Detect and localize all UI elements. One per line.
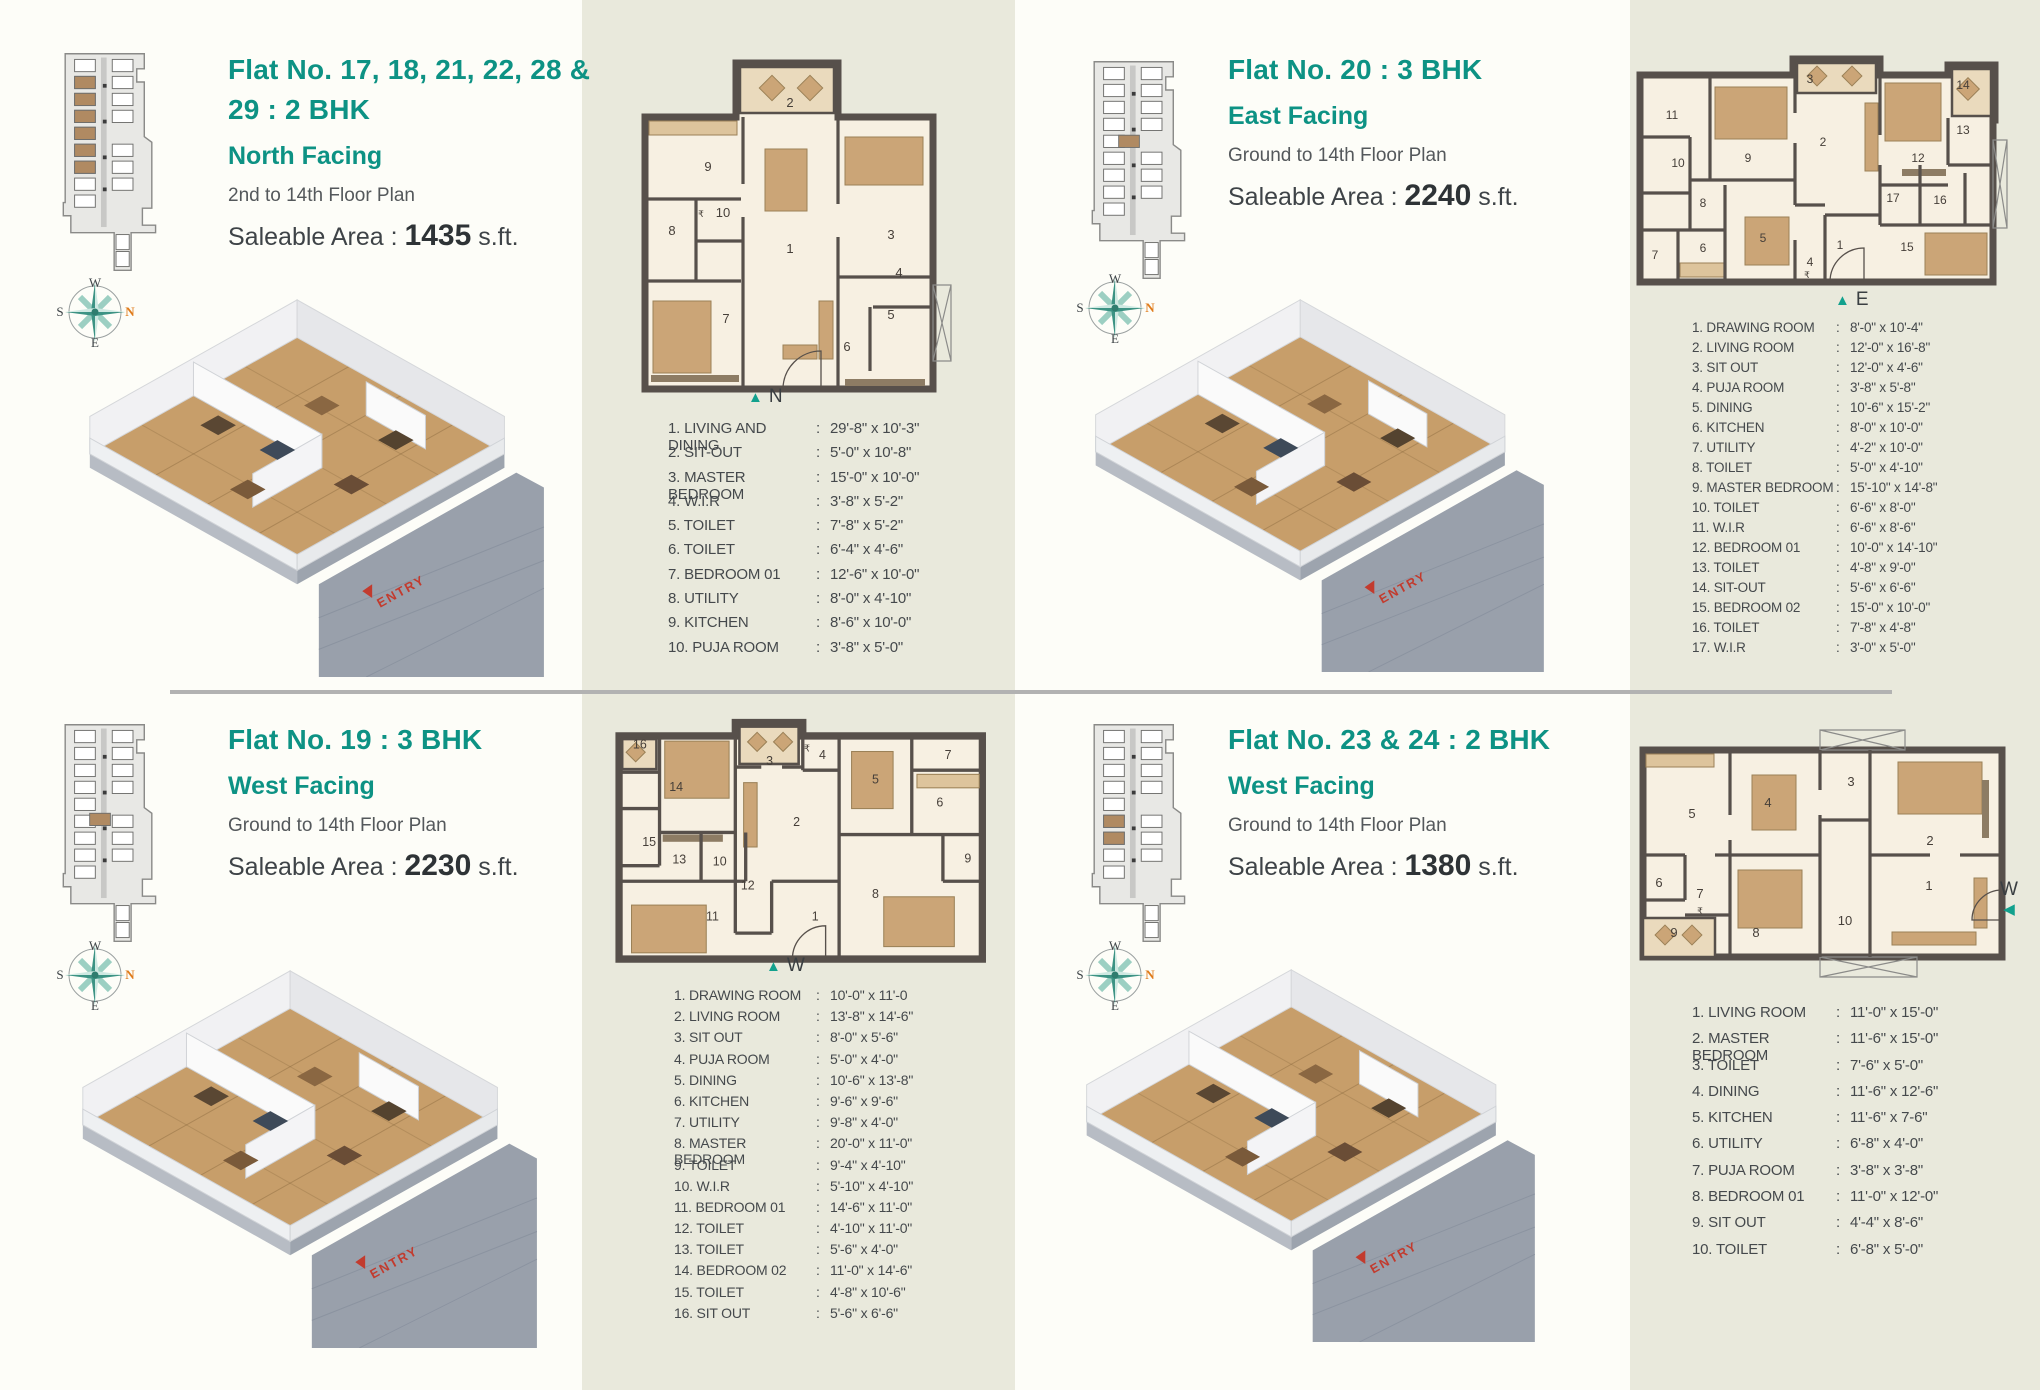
compass-letter-top: W (89, 275, 102, 290)
render-graphics: ENTRY (1096, 300, 1544, 672)
direction-arrow-icon: ▲ (1835, 293, 1850, 308)
room-dimension-list: 1. LIVING AND DINING:29'-8" x 10'-3"2. S… (668, 420, 968, 663)
area-unit: s.ft. (478, 223, 518, 251)
room-row: 11. W.I.R:6'-6" x 8'-6" (1692, 520, 1992, 540)
flat-header: Flat No. 17, 18, 21, 22, 28 & 29 : 2 BHK… (228, 50, 628, 253)
room-number-label: 8 (872, 887, 879, 901)
room-number-label: 5 (887, 307, 894, 322)
area-unit: s.ft. (1478, 853, 1518, 881)
room-row: 10. PUJA ROOM:3'-8" x 5'-0" (668, 639, 968, 663)
room-row: 4. PUJA ROOM:5'-0" x 4'-0" (674, 1051, 974, 1072)
direction-letter: W (2000, 879, 2018, 901)
room-row: 11. BEDROOM 01:14'-6" x 11'-0" (674, 1199, 974, 1220)
floor-range: 2nd to 14th Floor Plan (228, 185, 628, 207)
site-key-plan (52, 48, 165, 278)
area-label: Saleable Area : (1228, 853, 1398, 881)
direction-letter: W (787, 955, 805, 977)
room-number-label: 6 (1700, 241, 1707, 255)
compass-letter-top: W (1109, 271, 1122, 286)
direction-letter: N (769, 386, 783, 408)
room-row: 7. PUJA ROOM:3'-8" x 3'-8" (1692, 1162, 1992, 1188)
direction-arrow-icon: ◀ (2003, 902, 2015, 917)
room-number-label: 9 (1745, 151, 1752, 165)
room-row: 14. BEDROOM 02:11'-0" x 14'-6" (674, 1262, 974, 1283)
north-marker: ▲ N (748, 386, 783, 408)
floor-range: Ground to 14th Floor Plan (1228, 145, 1688, 167)
room-row: 12. TOILET:4'-10" x 11'-0" (674, 1220, 974, 1241)
room-number-label: 10 (716, 205, 730, 220)
saleable-area: Saleable Area : 1380 s.ft. (1228, 849, 1688, 883)
floor-plan-2d: 16143₹457621513101211189 (590, 710, 1000, 985)
room-number-label: 2 (1820, 135, 1827, 149)
room-row: 10. W.I.R:5'-10" x 4'-10" (674, 1178, 974, 1199)
room-row: 7. UTILITY:4'-2" x 10'-0" (1692, 440, 1992, 460)
room-row: 12. BEDROOM 01:10'-0" x 14'-10" (1692, 540, 1992, 560)
facing-label: East Facing (1228, 102, 1688, 131)
room-row: 14. SIT-OUT:5'-6" x 6'-6" (1692, 580, 1992, 600)
floor-plan-2d: 29₹108173456 (633, 49, 963, 409)
room-row: 8. TOILET:5'-0" x 4'-10" (1692, 460, 1992, 480)
room-row: 13. TOILET:5'-6" x 4'-0" (674, 1241, 974, 1262)
area-unit: s.ft. (1478, 183, 1518, 211)
room-row: 3. TOILET:7'-6" x 5'-0" (1692, 1057, 1992, 1083)
room-row: 5. TOILET:7'-8" x 5'-2" (668, 517, 968, 541)
room-number-label: 1 (1925, 878, 1932, 893)
saleable-area: Saleable Area : 1435 s.ft. (228, 219, 628, 253)
room-number-label: 3 (1847, 774, 1854, 789)
room-row: 8. UTILITY:8'-0" x 4'-10" (668, 590, 968, 614)
room-number-label: 3 (766, 754, 773, 768)
compass-letter-top: W (89, 938, 102, 953)
room-row: 4. PUJA ROOM:3'-8" x 5'-8" (1692, 380, 1992, 400)
flat-23-24-section: WSNE Flat No. 23 & 24 : 2 BHK West Facin… (1015, 693, 2040, 1390)
render-graphics: ENTRY (1087, 970, 1535, 1342)
room-number-label: 10 (1838, 913, 1852, 928)
floor-plan-2d: 5432167₹9810 (1630, 720, 2010, 980)
room-row: 6. TOILET:6'-4" x 4'-6" (668, 541, 968, 565)
room-number-label: 17 (1886, 191, 1900, 205)
room-number-label: 15 (642, 835, 656, 849)
room-number-label: 1 (1837, 238, 1844, 252)
area-value: 2230 (405, 849, 472, 882)
room-row: 3. SIT OUT:12'-0" x 4'-6" (1692, 360, 1992, 380)
floor-range: Ground to 14th Floor Plan (1228, 815, 1688, 837)
room-number-label: 5 (1688, 806, 1695, 821)
floor-plan-2d: 119321214131087654₹1171615 (1630, 45, 2010, 315)
flat-20-section: WSNE Flat No. 20 : 3 BHK East Facing Gro… (1015, 0, 2040, 697)
room-number-label: 14 (1956, 78, 1970, 92)
room-number-label: ₹ (804, 744, 810, 754)
room-row: 2. MASTER BEDROOM:11'-6" x 15'-0" (1692, 1030, 1992, 1056)
room-row: 2. LIVING ROOM:13'-8" x 14'-6" (674, 1008, 974, 1029)
room-number-label: 5 (872, 773, 879, 787)
room-number-label: 11 (1666, 108, 1679, 122)
room-number-label: 12 (741, 879, 755, 893)
room-number-label: 7 (722, 311, 729, 326)
room-row: 1. DRAWING ROOM:8'-0" x 10'-4" (1692, 320, 1992, 340)
west-marker: W ◀ (2000, 879, 2018, 917)
room-row: 8. MASTER BEDROOM:20'-0" x 11'-0" (674, 1135, 974, 1156)
facing-label: North Facing (228, 142, 628, 171)
room-row: 7. BEDROOM 01:12'-6" x 10'-0" (668, 566, 968, 590)
render-graphics: ENTRY (90, 300, 544, 677)
room-number-label: 5 (1760, 231, 1767, 245)
room-number-label: 7 (1652, 248, 1659, 262)
flat-title: Flat No. 20 : 3 BHK (1228, 50, 1688, 90)
room-number-label: 9 (704, 159, 711, 174)
room-row: 15. TOILET:4'-8" x 10'-6" (674, 1284, 974, 1305)
room-row: 4. DINING:11'-6" x 12'-6" (1692, 1083, 1992, 1109)
room-number-label: 10 (1671, 156, 1685, 170)
room-number-label: 13 (672, 853, 686, 867)
room-row: 5. DINING:10'-6" x 15'-2" (1692, 400, 1992, 420)
area-unit: s.ft. (478, 853, 518, 881)
room-row: 10. TOILET:6'-6" x 8'-0" (1692, 500, 1992, 520)
room-row: 10. TOILET:6'-8" x 5'-0" (1692, 1241, 1992, 1267)
site-key-plan (1081, 719, 1194, 949)
room-number-label: 8 (1700, 196, 1707, 210)
site-key-plan (52, 719, 165, 949)
room-row: 15. BEDROOM 02:15'-0" x 10'-0" (1692, 600, 1992, 620)
direction-letter: E (1856, 289, 1869, 311)
room-row: 2. SIT-OUT:5'-0" x 10'-8" (668, 444, 968, 468)
room-number-label: 3 (887, 227, 894, 242)
room-number-label: 8 (1752, 925, 1759, 940)
room-number-label: 16 (1933, 193, 1947, 207)
area-value: 1435 (405, 219, 472, 252)
isometric-3d-render: ENTRY (55, 963, 545, 1348)
room-number-label: 16 (633, 737, 647, 751)
room-row: 3. SIT OUT:8'-0" x 5'-6" (674, 1029, 974, 1050)
facing-label: West Facing (1228, 772, 1688, 801)
isometric-3d-render: ENTRY (1066, 962, 1536, 1342)
room-row: 16. TOILET:7'-8" x 4'-8" (1692, 620, 1992, 640)
room-number-label: ₹ (1804, 270, 1810, 280)
room-number-label: 6 (936, 796, 943, 810)
room-number-label: 12 (1911, 151, 1925, 165)
room-number-label: 7 (945, 748, 952, 762)
area-label: Saleable Area : (228, 853, 398, 881)
flat-17-section: WSNE Flat No. 17, 18, 21, 22, 28 & 29 : … (0, 0, 1025, 697)
room-row: 8. BEDROOM 01:11'-0" x 12'-0" (1692, 1188, 1992, 1214)
area-value: 2240 (1405, 179, 1472, 212)
room-row: 7. UTILITY:9'-8" x 4'-0" (674, 1114, 974, 1135)
room-row: 2. LIVING ROOM:12'-0" x 16'-8" (1692, 340, 1992, 360)
room-row: 9. TOILET:9'-4" x 4'-10" (674, 1157, 974, 1178)
area-label: Saleable Area : (1228, 183, 1398, 211)
room-row: 9. MASTER BEDROOM:15'-10" x 14'-8" (1692, 480, 1992, 500)
room-number-label: 4 (1807, 255, 1814, 269)
room-number-label: 4 (895, 265, 902, 280)
room-number-label: 7 (1696, 886, 1703, 901)
room-row: 5. KITCHEN:11'-6" x 7-6" (1692, 1109, 1992, 1135)
render-graphics: ENTRY (83, 971, 537, 1348)
room-number-label: 13 (1956, 123, 1970, 137)
room-row: 4. W.I.R:3'-8" x 5'-2" (668, 493, 968, 517)
room-dimension-list: 1. DRAWING ROOM:8'-0" x 10'-4"2. LIVING … (1692, 320, 1992, 660)
room-number-label: ₹ (698, 209, 704, 219)
room-number-label: 11 (706, 910, 719, 924)
flat-title: Flat No. 23 & 24 : 2 BHK (1228, 720, 1688, 760)
direction-arrow-icon: ▲ (766, 959, 781, 974)
room-row: 9. SIT OUT:4'-4" x 8'-6" (1692, 1214, 1992, 1240)
site-key-plan (1081, 56, 1194, 286)
area-label: Saleable Area : (228, 223, 398, 251)
room-number-label: 10 (713, 855, 727, 869)
room-number-label: 4 (819, 748, 826, 762)
room-number-label: 9 (1670, 925, 1677, 940)
room-number-label: 2 (793, 815, 800, 829)
direction-arrow-icon: ▲ (748, 390, 763, 405)
room-row: 16. SIT OUT:5'-6" x 6'-6" (674, 1305, 974, 1326)
room-number-label: 15 (1900, 240, 1914, 254)
room-number-label: 3 (1807, 72, 1814, 86)
room-row: 3. MASTER BEDROOM:15'-0" x 10'-0" (668, 469, 968, 493)
room-row: 1. DRAWING ROOM:10'-0" x 11'-0 (674, 987, 974, 1008)
west-marker: ▲ W (766, 955, 805, 977)
brochure-page: WSNE Flat No. 17, 18, 21, 22, 28 & 29 : … (0, 0, 2040, 1390)
room-row: 17. W.I.R:3'-0" x 5'-0" (1692, 640, 1992, 660)
room-row: 1. LIVING ROOM:11'-0" x 15'-0" (1692, 1004, 1992, 1030)
room-row: 13. TOILET:4'-8" x 9'-0" (1692, 560, 1992, 580)
room-number-label: 1 (812, 910, 819, 924)
isometric-3d-render: ENTRY (1070, 292, 1550, 672)
room-number-label: 4 (1764, 795, 1771, 810)
east-marker: ▲ E (1835, 289, 1869, 311)
room-dimension-list: 1. LIVING ROOM:11'-0" x 15'-0"2. MASTER … (1692, 1004, 1992, 1267)
room-row: 1. LIVING AND DINING:29'-8" x 10'-3" (668, 420, 968, 444)
room-dimension-list: 1. DRAWING ROOM:10'-0" x 11'-02. LIVING … (674, 987, 974, 1326)
room-row: 6. KITCHEN:9'-6" x 9'-6" (674, 1093, 974, 1114)
room-number-label: 6 (1655, 875, 1662, 890)
room-number-label: 8 (668, 223, 675, 238)
room-number-label: 14 (669, 780, 683, 794)
flat-19-section: WSNE Flat No. 19 : 3 BHK West Facing Gro… (0, 693, 1025, 1390)
room-number-label: ₹ (1697, 906, 1703, 916)
room-number-label: 2 (1926, 833, 1933, 848)
saleable-area: Saleable Area : 2240 s.ft. (1228, 179, 1688, 213)
room-row: 6. KITCHEN:8'-0" x 10'-0" (1692, 420, 1992, 440)
room-number-label: 2 (786, 95, 793, 110)
room-number-label: 1 (786, 241, 793, 256)
area-value: 1380 (1405, 849, 1472, 882)
flat-header: Flat No. 20 : 3 BHK East Facing Ground t… (1228, 50, 1688, 213)
room-row: 9. KITCHEN:8'-6" x 10'-0" (668, 614, 968, 638)
flat-header: Flat No. 23 & 24 : 2 BHK West Facing Gro… (1228, 720, 1688, 883)
compass-letter-top: W (1109, 938, 1122, 953)
room-row: 6. UTILITY:6'-8" x 4'-0" (1692, 1135, 1992, 1161)
isometric-3d-render: ENTRY (62, 292, 552, 677)
room-number-label: 6 (843, 339, 850, 354)
room-number-label: 9 (964, 852, 971, 866)
room-row: 5. DINING:10'-6" x 13'-8" (674, 1072, 974, 1093)
flat-title: Flat No. 17, 18, 21, 22, 28 & 29 : 2 BHK (228, 50, 628, 130)
